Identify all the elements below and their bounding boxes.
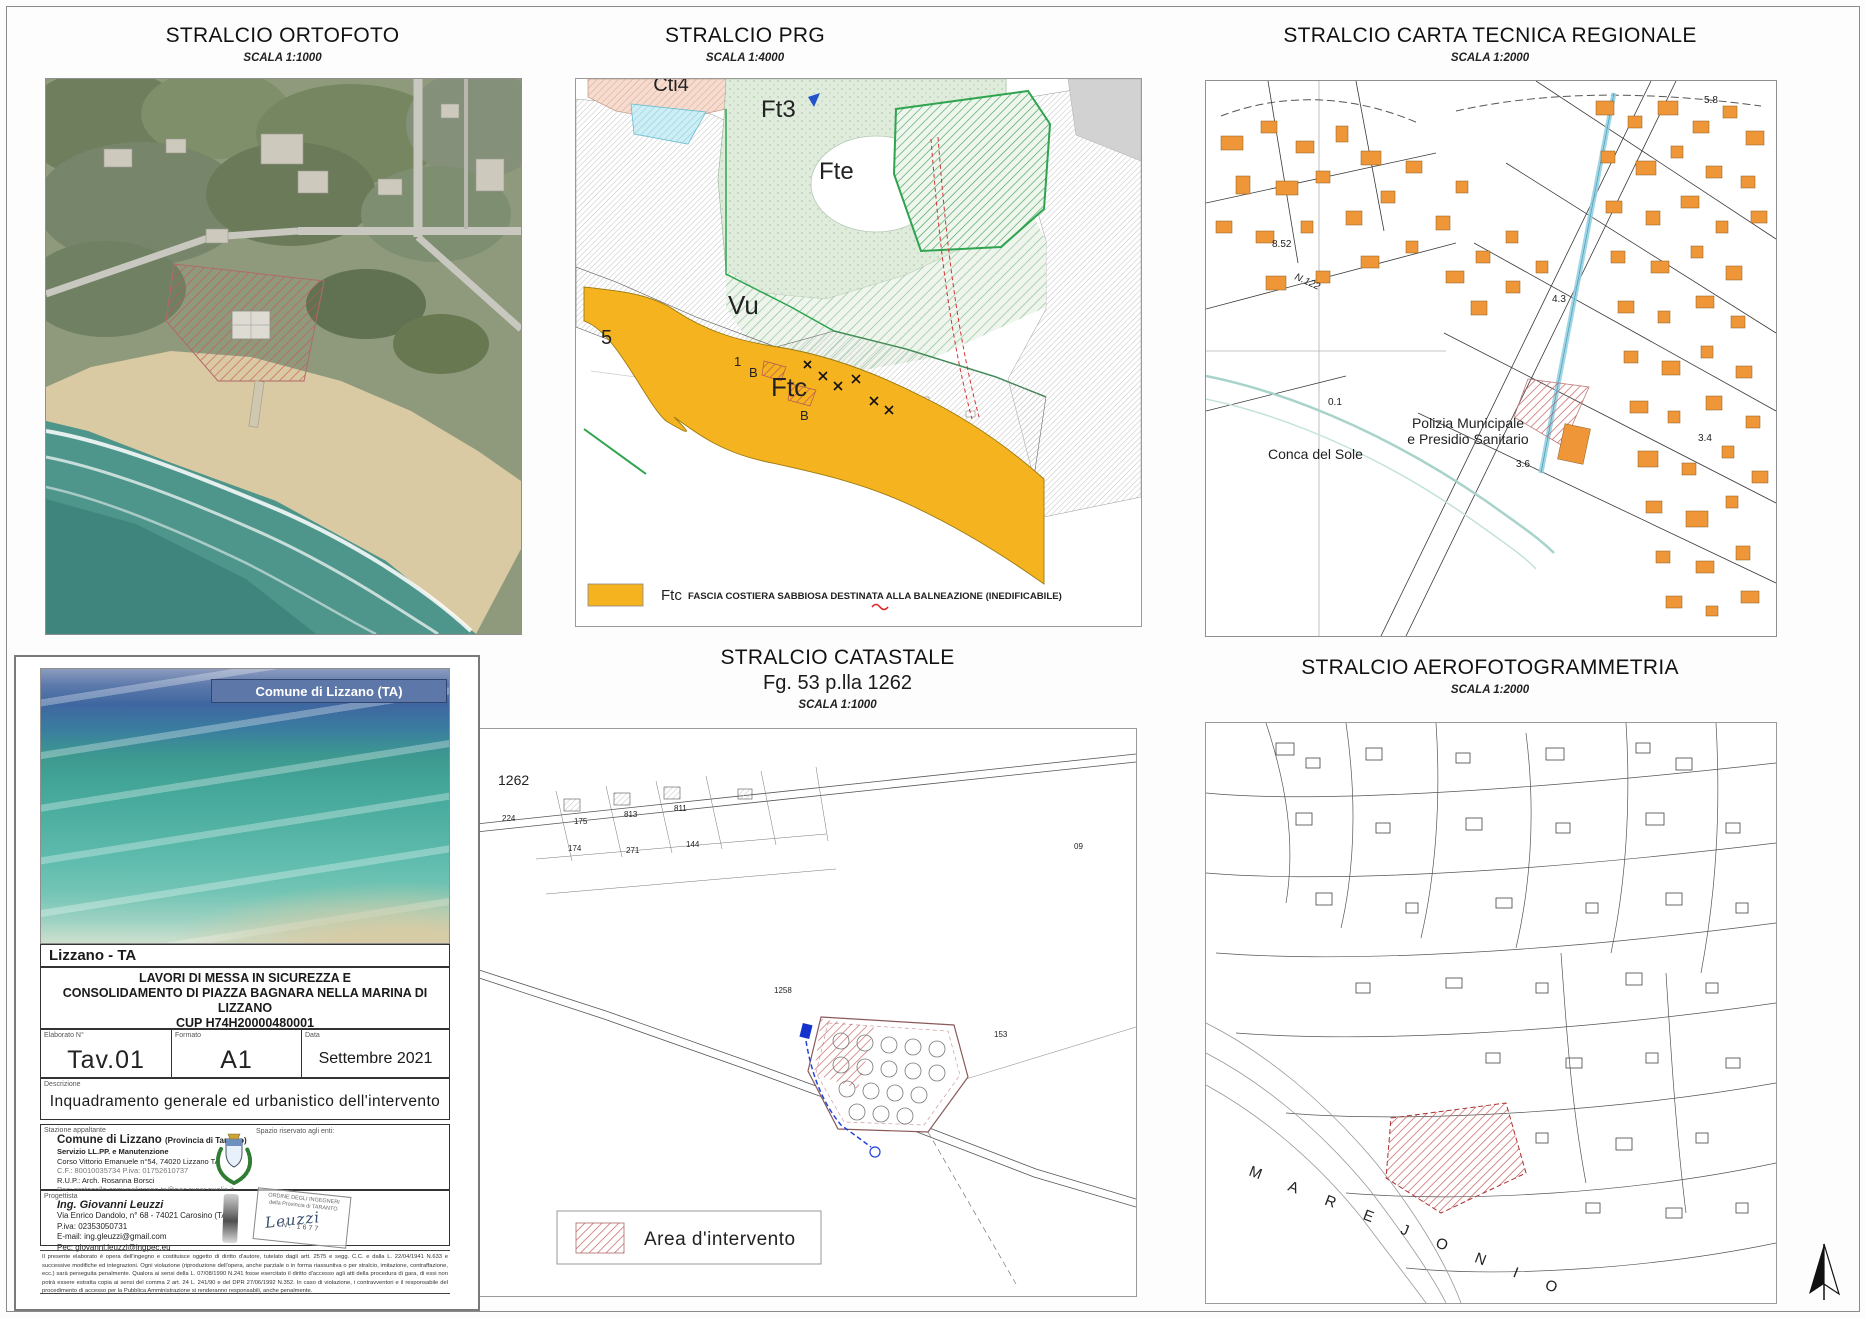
prg-legend-swatch: [588, 584, 643, 606]
catastale-title: STRALCIO CATASTALE: [555, 646, 1120, 670]
prg-zone-ftc: Ftc: [771, 372, 807, 402]
prg-header: STRALCIO PRG SCALA 1:4000: [575, 24, 915, 65]
prg-zone-fte: Fte: [819, 158, 854, 185]
comune-crest-icon: [213, 1131, 255, 1187]
catastale-parcel-144: 144: [686, 840, 700, 849]
aero-scale: SCALA 1:2000: [1205, 684, 1775, 697]
project-line-1: LAVORI DI MESSA IN SICUREZZA E: [41, 971, 449, 986]
project-title-box: LAVORI DI MESSA IN SICUREZZA E CONSOLIDA…: [40, 967, 450, 1029]
catastale-scale: SCALA 1:1000: [555, 699, 1120, 712]
catastale-parcel-811: 811: [674, 804, 687, 813]
field-data: Data Settembre 2021: [301, 1029, 450, 1078]
catastale-map-drawing: 1262 224 175 813 811 174 271 144 1258 09…: [476, 729, 1136, 1296]
ctr-elev-852: 8.52: [1272, 239, 1292, 250]
aero-title: STRALCIO AEROFOTOGRAMMETRIA: [1205, 656, 1775, 680]
catastale-parcel-174: 174: [568, 844, 582, 853]
field-formato-label: Formato: [175, 1032, 201, 1039]
prg-zone-5: 5: [601, 327, 612, 349]
field-elaborato-label: Elaborato N°: [44, 1032, 84, 1039]
prg-title: STRALCIO PRG: [575, 24, 915, 48]
field-formato: Formato A1: [171, 1029, 302, 1078]
catastale-legend-label: Area d'intervento: [644, 1229, 796, 1250]
catastale-parcel-813: 813: [624, 810, 638, 819]
field-elaborato-value: Tav.01: [41, 1046, 171, 1075]
catastale-parcel-224: 224: [502, 814, 516, 823]
ctr-label-conca: Conca del Sole: [1268, 446, 1363, 462]
progettista-line-2: Via Enrico Dandolo, n° 68 - 74021 Carosi…: [57, 1211, 229, 1222]
ctr-map: 5.8 8.52 N.122 4.3 0.1 3.6 3.4 Conca del…: [1205, 80, 1777, 637]
prg-legend-code: Ftc: [661, 587, 682, 604]
stazione-name: Comune di Lizzano: [57, 1134, 162, 1146]
project-line-2: CONSOLIDAMENTO DI PIAZZA BAGNARA NELLA M…: [41, 986, 449, 1016]
catastale-header: STRALCIO CATASTALE Fg. 53 p.lla 1262 SCA…: [555, 646, 1120, 712]
prg-zone-ft3: Ft3: [761, 96, 796, 123]
descrizione-box: Descrizione Inquadramento generale ed ur…: [40, 1078, 450, 1120]
prg-map-drawing: Cti4 Ft3 Fte Vu Ftc 5 1 B B Ftc FASCIA C…: [576, 79, 1141, 626]
catastale-legend-swatch: [576, 1223, 624, 1253]
field-formato-value: A1: [172, 1046, 301, 1075]
ortofoto-title: STRALCIO ORTOFOTO: [45, 24, 520, 48]
ortofoto-map: [45, 78, 522, 635]
prg-zone-cti4: Cti4: [653, 79, 689, 96]
catastale-subtitle: Fg. 53 p.lla 1262: [555, 672, 1120, 695]
ctr-label-polizia-2: e Presidio Sanitario: [1407, 431, 1529, 447]
sea-photo: Comune di Lizzano (TA): [40, 668, 450, 944]
catastale-parcel-1258: 1258: [774, 986, 792, 995]
descrizione-label: Descrizione: [44, 1081, 81, 1088]
aero-map: M A R E J O N I O: [1205, 722, 1777, 1304]
ortofoto-scale: SCALA 1:1000: [45, 52, 520, 65]
aero-map-drawing: M A R E J O N I O: [1206, 723, 1776, 1303]
ctr-header: STRALCIO CARTA TECNICA REGIONALE SCALA 1…: [1205, 24, 1775, 65]
ctr-elev-43: 4.3: [1552, 294, 1566, 305]
prg-label-b2: B: [800, 408, 809, 423]
ctr-elev-36: 3.6: [1516, 459, 1530, 470]
comune-banner: Comune di Lizzano (TA): [211, 679, 447, 703]
ortofoto-image: [46, 79, 521, 634]
ctr-map-drawing: 5.8 8.52 N.122 4.3 0.1 3.6 3.4 Conca del…: [1206, 81, 1776, 636]
field-data-value: Settembre 2021: [302, 1050, 449, 1068]
ctr-elev-01: 0.1: [1328, 397, 1342, 408]
signature-photo-streak: [222, 1194, 239, 1243]
catastale-parcel-09: 09: [1074, 842, 1083, 851]
catastale-parcel-271: 271: [626, 846, 640, 855]
ctr-elev-58: 5.8: [1704, 95, 1718, 106]
prg-label-1: 1: [734, 354, 741, 369]
catastale-map: 1262 224 175 813 811 174 271 144 1258 09…: [475, 728, 1137, 1297]
progettista-box: Progettista Ing. Giovanni Leuzzi Via Enr…: [40, 1190, 450, 1246]
progettista-name: Ing. Giovanni Leuzzi: [57, 1199, 229, 1211]
ortofoto-header: STRALCIO ORTOFOTO SCALA 1:1000: [45, 24, 520, 65]
fields-row: Elaborato N° Tav.01 Formato A1 Data Sett…: [40, 1029, 452, 1078]
stazione-appaltante-box: Stazione appaltante Spazio riservato agl…: [40, 1124, 450, 1190]
location-label: Lizzano - TA: [40, 944, 450, 967]
prg-legend-text: FASCIA COSTIERA SABBIOSA DESTINATA ALLA …: [688, 591, 1062, 602]
field-data-label: Data: [305, 1032, 320, 1039]
drawing-sheet: STRALCIO ORTOFOTO SCALA 1:1000 STRALCIO …: [0, 0, 1866, 1318]
prg-zone-vu: Vu: [728, 290, 759, 320]
stazione-label: Stazione appaltante: [44, 1127, 106, 1134]
ctr-elev-34: 3.4: [1698, 433, 1712, 444]
ctr-title: STRALCIO CARTA TECNICA REGIONALE: [1205, 24, 1775, 48]
catastale-parcel-175: 175: [574, 817, 588, 826]
north-arrow-icon: [1796, 1238, 1852, 1304]
prg-label-b1: B: [749, 365, 758, 380]
progettista-line-3: P.iva: 02353050731: [57, 1222, 229, 1233]
ctr-scale: SCALA 1:2000: [1205, 52, 1775, 65]
fineprint-legal-text: Il presente elaborato è opera dell'ingeg…: [40, 1250, 450, 1294]
prg-scale: SCALA 1:4000: [575, 52, 915, 65]
titleblock: Comune di Lizzano (TA) Lizzano - TA LAVO…: [40, 668, 452, 1296]
spazio-enti-label: Spazio riservato agli enti:: [256, 1128, 334, 1135]
catastale-parcel-1262: 1262: [498, 772, 529, 788]
field-elaborato: Elaborato N° Tav.01: [40, 1029, 172, 1078]
progettista-line-4: E-mail: ing.gleuzzi@gmail.com: [57, 1232, 229, 1243]
ctr-label-polizia-1: Polizia Municipale: [1412, 415, 1524, 431]
catastale-parcel-153: 153: [994, 1030, 1008, 1039]
descrizione-value: Inquadramento generale ed urbanistico de…: [41, 1093, 449, 1111]
prg-map: Cti4 Ft3 Fte Vu Ftc 5 1 B B Ftc FASCIA C…: [575, 78, 1142, 627]
aero-header: STRALCIO AEROFOTOGRAMMETRIA SCALA 1:2000: [1205, 656, 1775, 697]
